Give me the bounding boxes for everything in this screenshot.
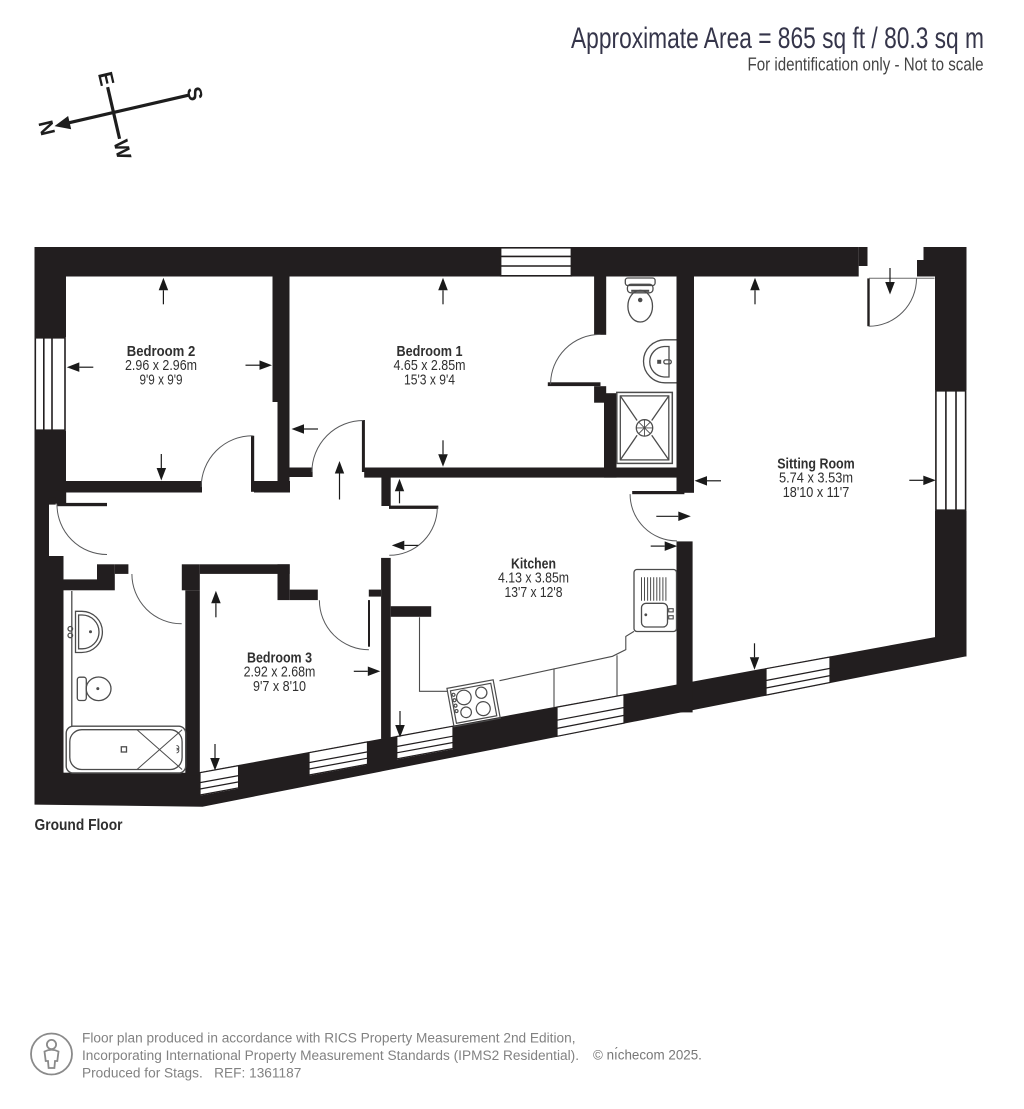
svg-text:18'10 x 11'7: 18'10 x 11'7 xyxy=(783,484,850,501)
svg-text:Produced for Stags. REF: 136: Produced for Stags. REF: 1361187 xyxy=(82,1066,301,1081)
svg-text:9'9 x 9'9: 9'9 x 9'9 xyxy=(140,371,183,388)
svg-text:© nı́checom 2025.: © nı́checom 2025. xyxy=(593,1048,702,1063)
svg-text:Approximate Area = 865 sq ft /: Approximate Area = 865 sq ft / 80.3 sq m xyxy=(571,22,984,55)
svg-text:13'7 x 12'8: 13'7 x 12'8 xyxy=(505,584,563,601)
svg-text:15'3 x 9'4: 15'3 x 9'4 xyxy=(404,371,455,388)
svg-text:Incorporating International Pr: Incorporating International Property Mea… xyxy=(82,1048,579,1063)
svg-text:Floor plan produced in accorda: Floor plan produced in accordance with R… xyxy=(82,1031,576,1046)
svg-text:For identification only - Not: For identification only - Not to scale xyxy=(748,55,984,75)
svg-text:9'7 x 8'10: 9'7 x 8'10 xyxy=(253,678,306,695)
svg-text:Ground Floor: Ground Floor xyxy=(35,817,123,834)
